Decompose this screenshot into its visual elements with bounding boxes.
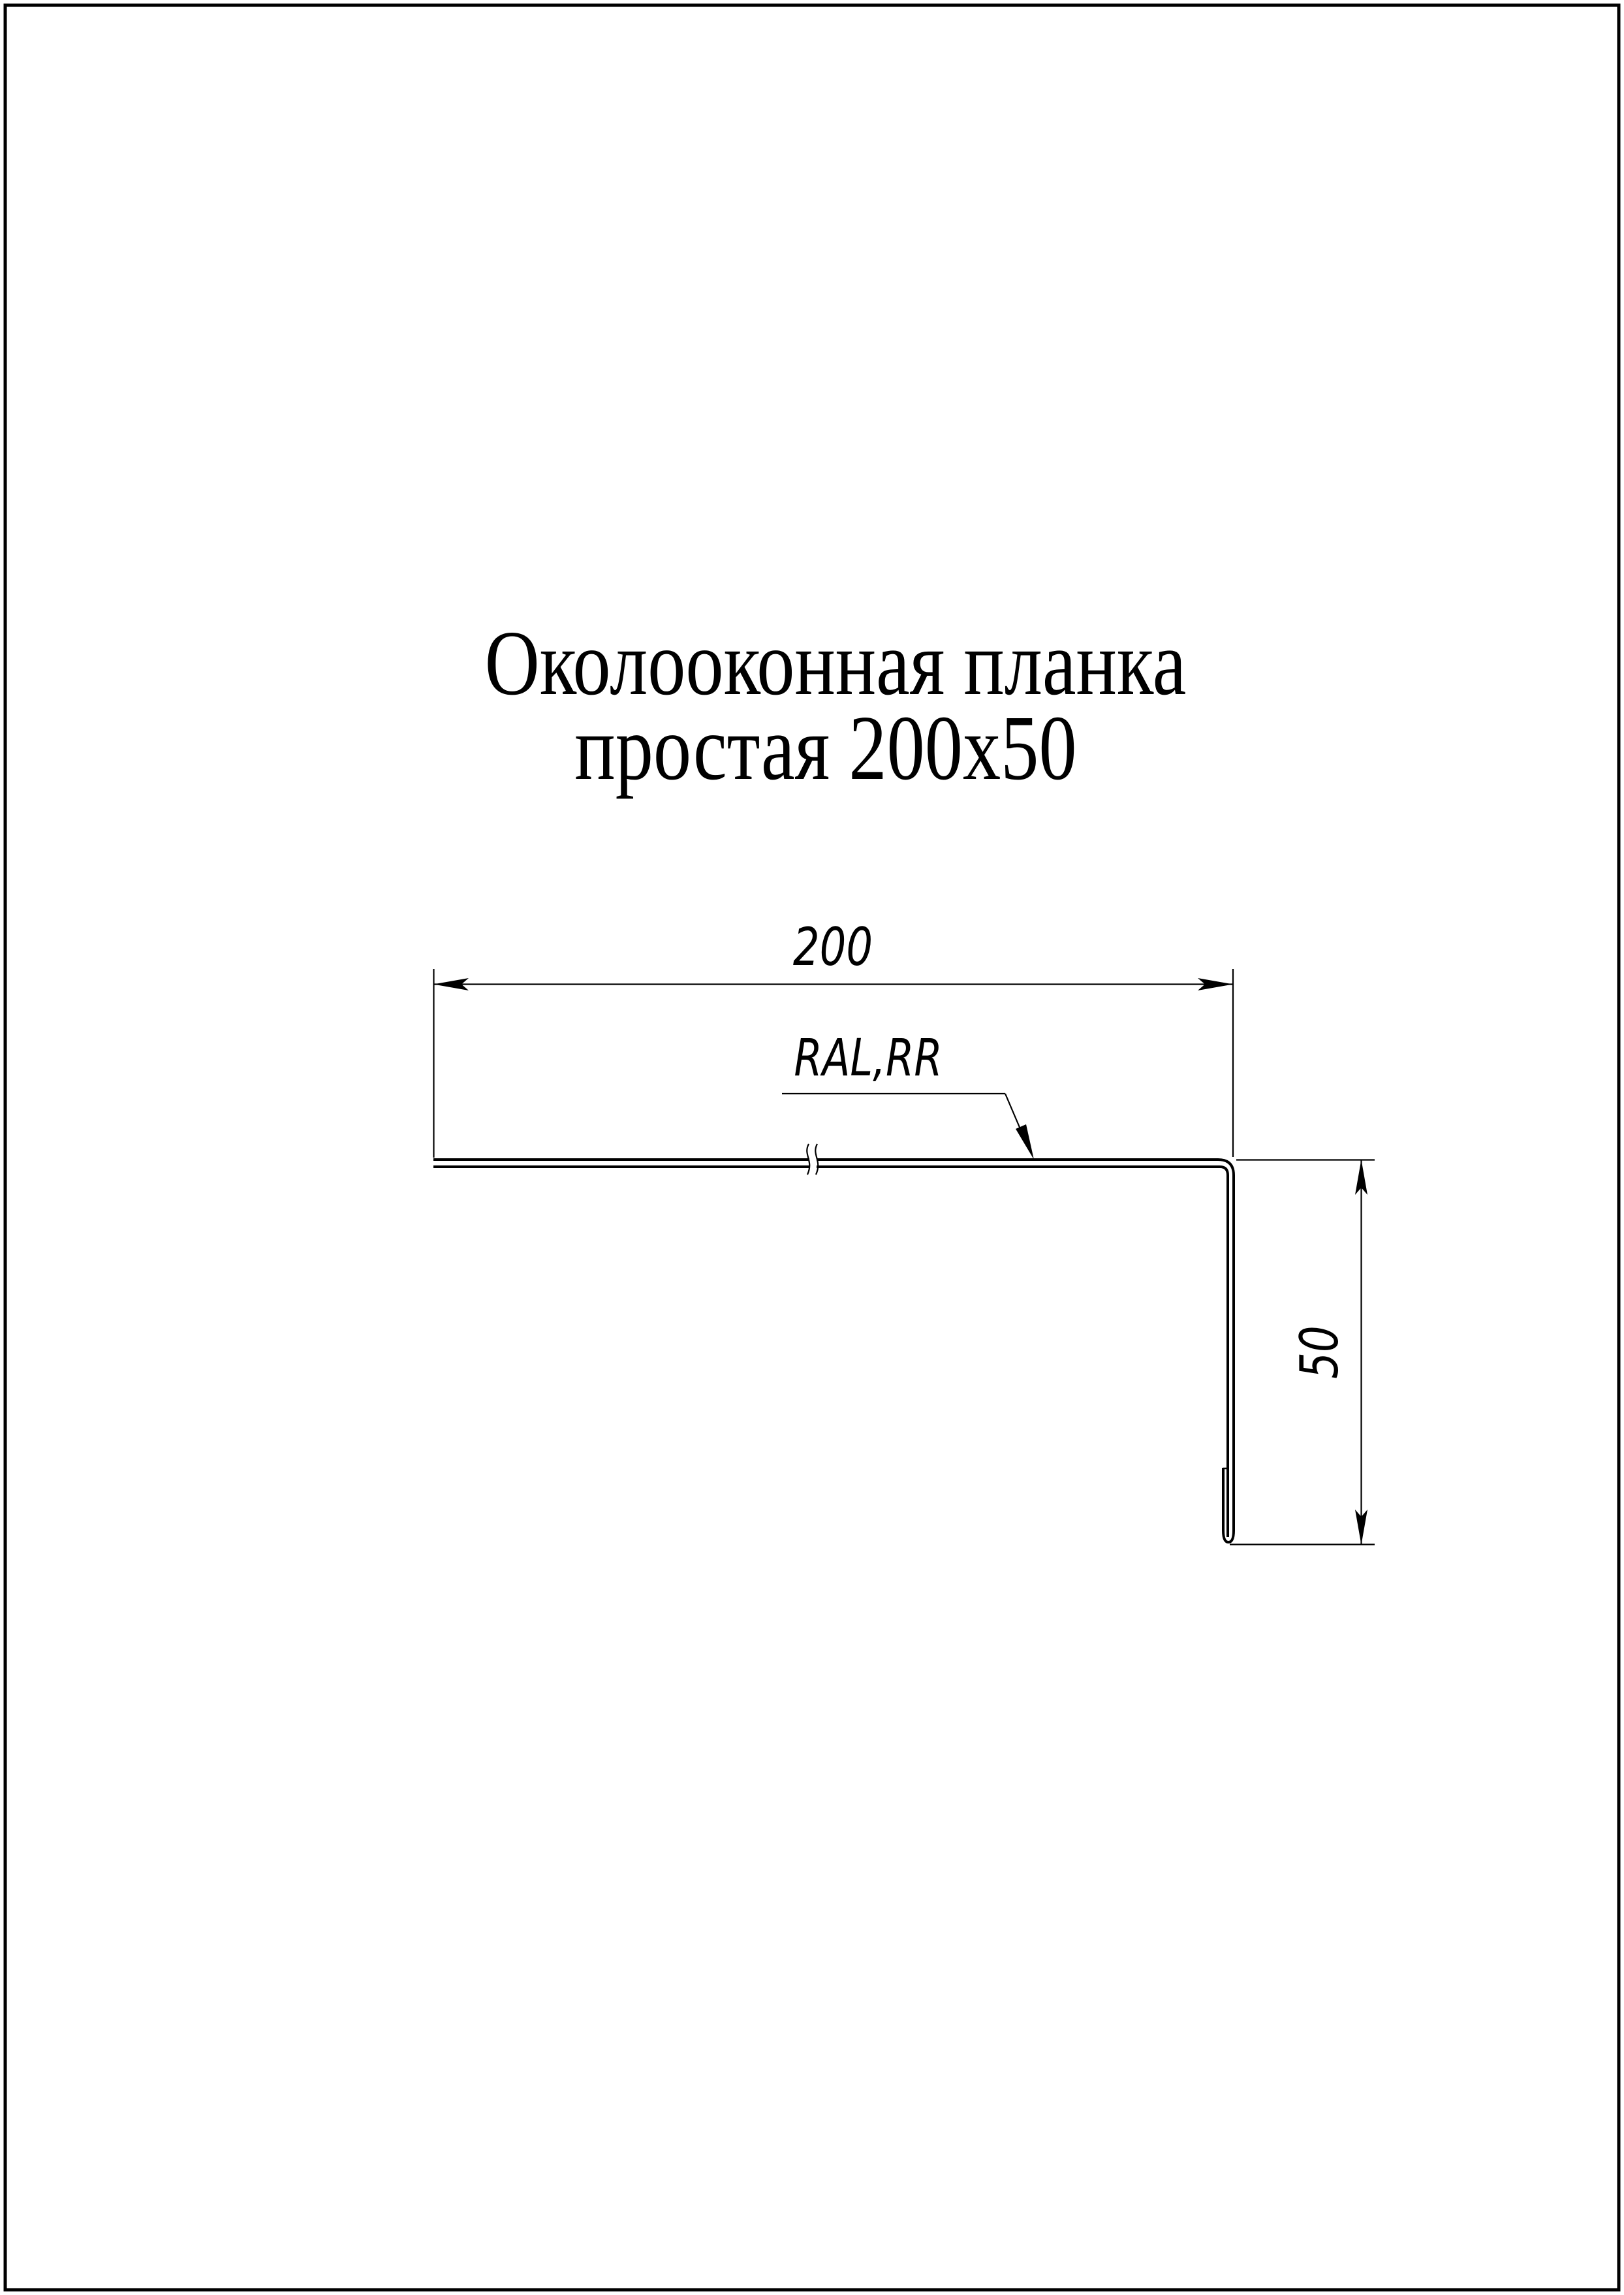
width-dimension-label: 200 <box>793 917 873 978</box>
break-symbol <box>807 1144 818 1175</box>
break-gap <box>809 1155 817 1171</box>
coating-leader: RAL,RR <box>782 1028 1034 1160</box>
sheet-profile <box>433 1160 1234 1542</box>
drawing-canvas: Околооконная планка простая 200x50 200 <box>0 0 1624 2295</box>
height-dimension-label: 50 <box>1290 1325 1351 1378</box>
title-line-2: простая 200x50 <box>574 697 1076 799</box>
page-border <box>5 5 1619 2290</box>
dimension-height: 50 <box>1230 1160 1375 1545</box>
coating-label: RAL,RR <box>794 1028 942 1088</box>
drawing-title: Околооконная планка простая 200x50 <box>485 612 1187 799</box>
profile-outer-surface <box>433 1160 1234 1542</box>
leader-arrowhead <box>1016 1124 1034 1160</box>
profile-inner-surface <box>433 1167 1228 1537</box>
